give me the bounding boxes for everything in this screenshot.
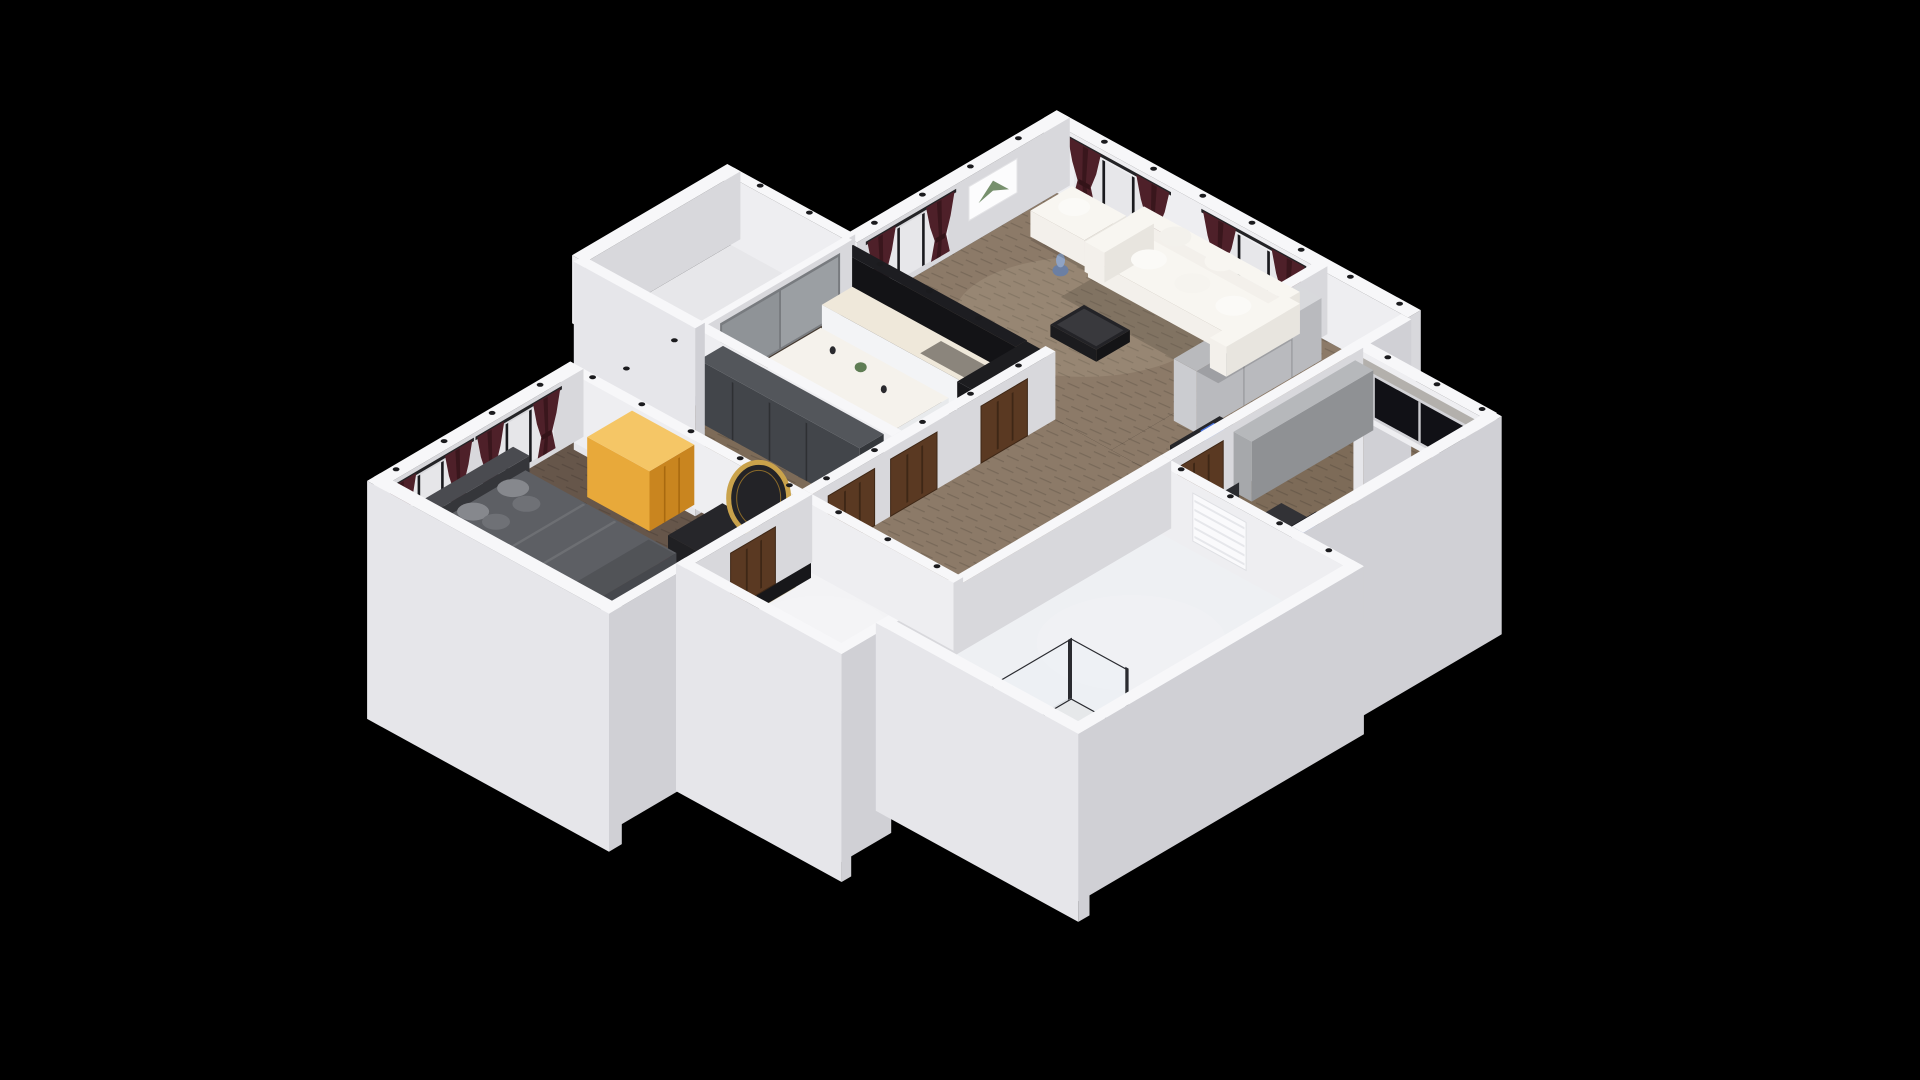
sofa-cushion [1174, 273, 1210, 293]
downlight [919, 420, 926, 424]
closet-south-wall [842, 648, 852, 882]
door-panel-line [997, 401, 999, 450]
island-bottle [830, 346, 836, 354]
entry-wardrobe [1174, 359, 1197, 434]
downlight [871, 221, 878, 225]
shower-frame-post [1068, 638, 1072, 700]
downlight [688, 429, 695, 433]
downlight [1276, 521, 1283, 525]
window-mullion [922, 213, 925, 267]
door-panel-line [1012, 392, 1014, 441]
downlight [1396, 302, 1403, 306]
master-south-wall [609, 606, 622, 852]
downlight [757, 184, 764, 188]
downlight [975, 316, 982, 320]
downlight [806, 211, 813, 215]
downlight [1015, 364, 1022, 368]
render-viewport [0, 0, 1920, 1080]
downlight [919, 193, 926, 197]
downlight [871, 448, 878, 452]
gold-cabinet-seam [678, 457, 680, 514]
downlight [877, 262, 884, 266]
downlight [1150, 167, 1157, 171]
pillow [497, 479, 529, 497]
downlight [967, 164, 974, 168]
pillow [512, 496, 540, 512]
downlight [835, 510, 842, 514]
downlight [1479, 407, 1486, 411]
master-north-wall [954, 577, 964, 651]
downlight [1227, 494, 1234, 498]
downlight [1384, 355, 1391, 359]
window-mullion [529, 409, 532, 463]
sofa-cushion [1131, 249, 1167, 269]
downlight [1178, 467, 1185, 471]
downlight [537, 383, 544, 387]
downlight [623, 367, 630, 371]
downlight [589, 375, 596, 379]
wardrobe-seam [806, 423, 808, 482]
door-panel-line [760, 540, 762, 589]
downlight [489, 411, 496, 415]
sofa-cushion [1215, 296, 1251, 316]
bathroom-south-wall [1078, 727, 1089, 922]
island-plant [855, 362, 867, 372]
loveseat-cushion [1058, 198, 1090, 216]
downlight [967, 392, 974, 396]
door-panel-line [921, 445, 923, 494]
downlight [638, 402, 645, 406]
door-panel-line [746, 548, 748, 597]
downlight [441, 439, 448, 443]
downlight [934, 564, 941, 568]
downlight [1434, 382, 1441, 386]
sofa-back-pillow [1205, 251, 1237, 271]
floorplan-3d-render [0, 0, 1920, 1080]
gold-cabinet-seam [664, 466, 666, 523]
downlight [786, 483, 793, 487]
downlight [1015, 136, 1022, 140]
pillow [482, 514, 510, 530]
downlight [1325, 548, 1332, 552]
island-bottle [881, 385, 887, 393]
window-mullion [1418, 401, 1420, 442]
downlight [1101, 140, 1108, 144]
downlight [1347, 275, 1354, 279]
downlight [737, 456, 744, 460]
door-panel-line [906, 454, 908, 503]
downlight [884, 537, 891, 541]
downlight [823, 476, 830, 480]
downlight [1199, 194, 1206, 198]
downlight [1249, 221, 1256, 225]
downlight [1298, 248, 1305, 252]
downlight [393, 467, 400, 471]
wardrobe-seam [769, 402, 771, 461]
sofa-back-pillow [1159, 227, 1191, 247]
downlight [926, 289, 933, 293]
downlight [671, 338, 678, 342]
wardrobe-seam [732, 382, 734, 441]
